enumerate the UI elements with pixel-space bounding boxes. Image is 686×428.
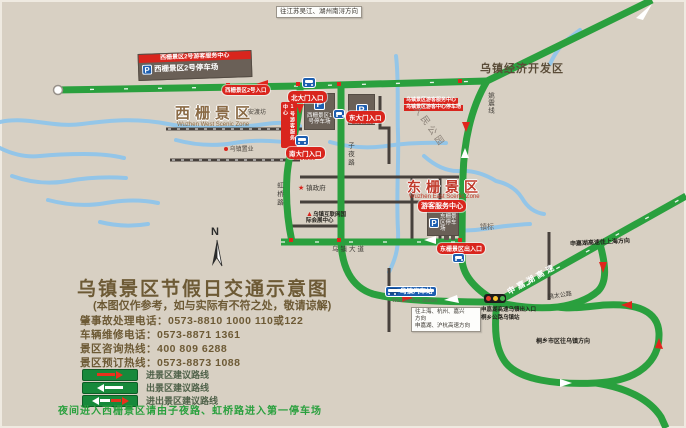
expo-center-label: 乌镇互联网国际会展中心 (306, 212, 346, 224)
bus-icon (453, 254, 464, 262)
east-parking-label: 东栅景区停车场 (440, 214, 457, 232)
east-zone-title: 东栅景区 (407, 179, 483, 195)
parking-icon: P (429, 218, 439, 228)
real-estate-poi: 乌镇置业 (224, 147, 254, 154)
hotline-accident: 肇事故处理电话：0573-8810 1000 110或122 (80, 313, 303, 328)
east-visitor-center-pill: 游客服务中心 (418, 200, 466, 212)
road-label-hongqiao: 虹桥路 (275, 182, 282, 208)
legend-row-in: 进景区建议路线 (82, 368, 209, 381)
arrow-bar (105, 386, 123, 389)
road-label-yaozhen: 姚震线 (486, 92, 493, 115)
east-parking-building: P 东栅景区停车场 (427, 210, 459, 236)
expo-center-poi: ▲乌镇互联网国际会展中心 (306, 212, 346, 224)
hotline-inquiry: 景区咨询热线：400 809 6288 (80, 341, 227, 356)
road-loop-south (596, 383, 666, 428)
bus-icon (296, 136, 308, 145)
road-main-ew (56, 81, 487, 90)
west-zone-title: 西栅景区 (175, 105, 255, 122)
wuzhen-traffic-map: 西栅景区2号游客服务中心 P 西栅景区2号停车场 P 西栅景区1号停车场 P P… (0, 0, 686, 428)
south-gate-en: Entrance (294, 157, 315, 163)
bus-icon (389, 288, 398, 295)
bus-station-pill: 乌镇汽车站 (386, 287, 436, 296)
hotline-repair: 车辆维修电话：0573-8871 1361 (80, 327, 241, 342)
triangle-icon: ▲ (306, 211, 313, 218)
dev-zone-label: 乌镇经济开发区 (480, 63, 564, 76)
left-arrow-icon (97, 384, 104, 392)
expressway-exit-label: 申嘉湖高速乌镇出入口 (481, 307, 536, 313)
hotline-label: 车辆维修电话： (80, 329, 157, 341)
west1-center-pill: 1号游客服务中心 (281, 102, 297, 148)
town-mark-label: 镇标 (480, 224, 494, 232)
legend-row-out: 出景区建议路线 (82, 381, 209, 394)
direction-south-line3: 申嘉湖、沪杭高速方向 (415, 323, 477, 330)
andu-fang-label: 安渡坊 (248, 110, 266, 117)
road-label-ziye: 子夜路 (346, 142, 353, 168)
compass-label: N (211, 226, 219, 239)
dot-icon (224, 147, 228, 151)
toll-station-label: 桐乡公路乌镇站 (481, 315, 520, 321)
east-zone-en: Wuzhen East Scenic Zone (409, 194, 480, 201)
legend-label-out: 出景区建议路线 (146, 381, 209, 394)
bus-station-en: Wuzhen Bus Station (392, 299, 437, 305)
town-gov-label: 镇政府 (306, 185, 326, 192)
star-icon: ★ (298, 185, 304, 192)
west2-entry-pill: 西栅景区2号入口 (222, 85, 270, 95)
west1-parking-label: 西栅景区1号停车场 (305, 112, 334, 126)
parking-icon: P (142, 65, 152, 75)
direction-tongxiang-label: 桐乡市区往乌镇方向 (536, 339, 590, 346)
west2-parking-building: 西栅景区2号游客服务中心 P 西栅景区2号停车场 (138, 50, 253, 81)
west-zone-en: Wuzhen West Scenic Zone (177, 122, 249, 129)
night-route-note: 夜间进入西栅景区请由子夜路、虹桥路进入第一停车场 (58, 402, 322, 417)
hotline-value: 0573-8871 1361 (157, 329, 241, 341)
legend-label-in: 进景区建议路线 (146, 368, 209, 381)
roundabout (54, 86, 63, 95)
east-scenic-entry-pill: 东栅景区出入口 (437, 243, 485, 254)
right-arrow-icon (116, 371, 123, 379)
hotline-value: 0573-8810 1000 110或122 (168, 315, 303, 327)
legend-chip-in (82, 369, 138, 381)
bus-icon (334, 110, 344, 118)
hotline-label: 景区咨询热线： (80, 343, 157, 355)
west2-parking-label: 西栅景区2号停车场 (154, 63, 218, 74)
hotline-label: 肇事故处理电话： (80, 315, 168, 327)
town-gov-poi: ★ 镇政府 (298, 185, 326, 193)
road-label-wuzhen-ave: 乌镇大道 (332, 246, 366, 253)
real-estate-label: 乌镇置业 (230, 147, 254, 153)
main-center-label: 乌镇景区游客服务中心 (404, 98, 458, 104)
traffic-light-icon (484, 294, 506, 303)
east-gate-en: Entrance (352, 121, 373, 127)
bus-icon (303, 78, 315, 87)
hotline-value: 400 809 6288 (157, 343, 227, 355)
compass-needle (212, 240, 222, 266)
direction-northwest-box: 往江苏吴江、湖州南浔方向 (276, 6, 362, 18)
arrow-bar (97, 373, 115, 376)
map-subtitle: (本图仅作参考，如与实际有不符之处，敬请谅解) (93, 297, 331, 313)
legend-chip-out (82, 382, 138, 394)
direction-south-box: 往上海、杭州、嘉兴 方向 申嘉湖、沪杭高速方向 (411, 307, 481, 332)
